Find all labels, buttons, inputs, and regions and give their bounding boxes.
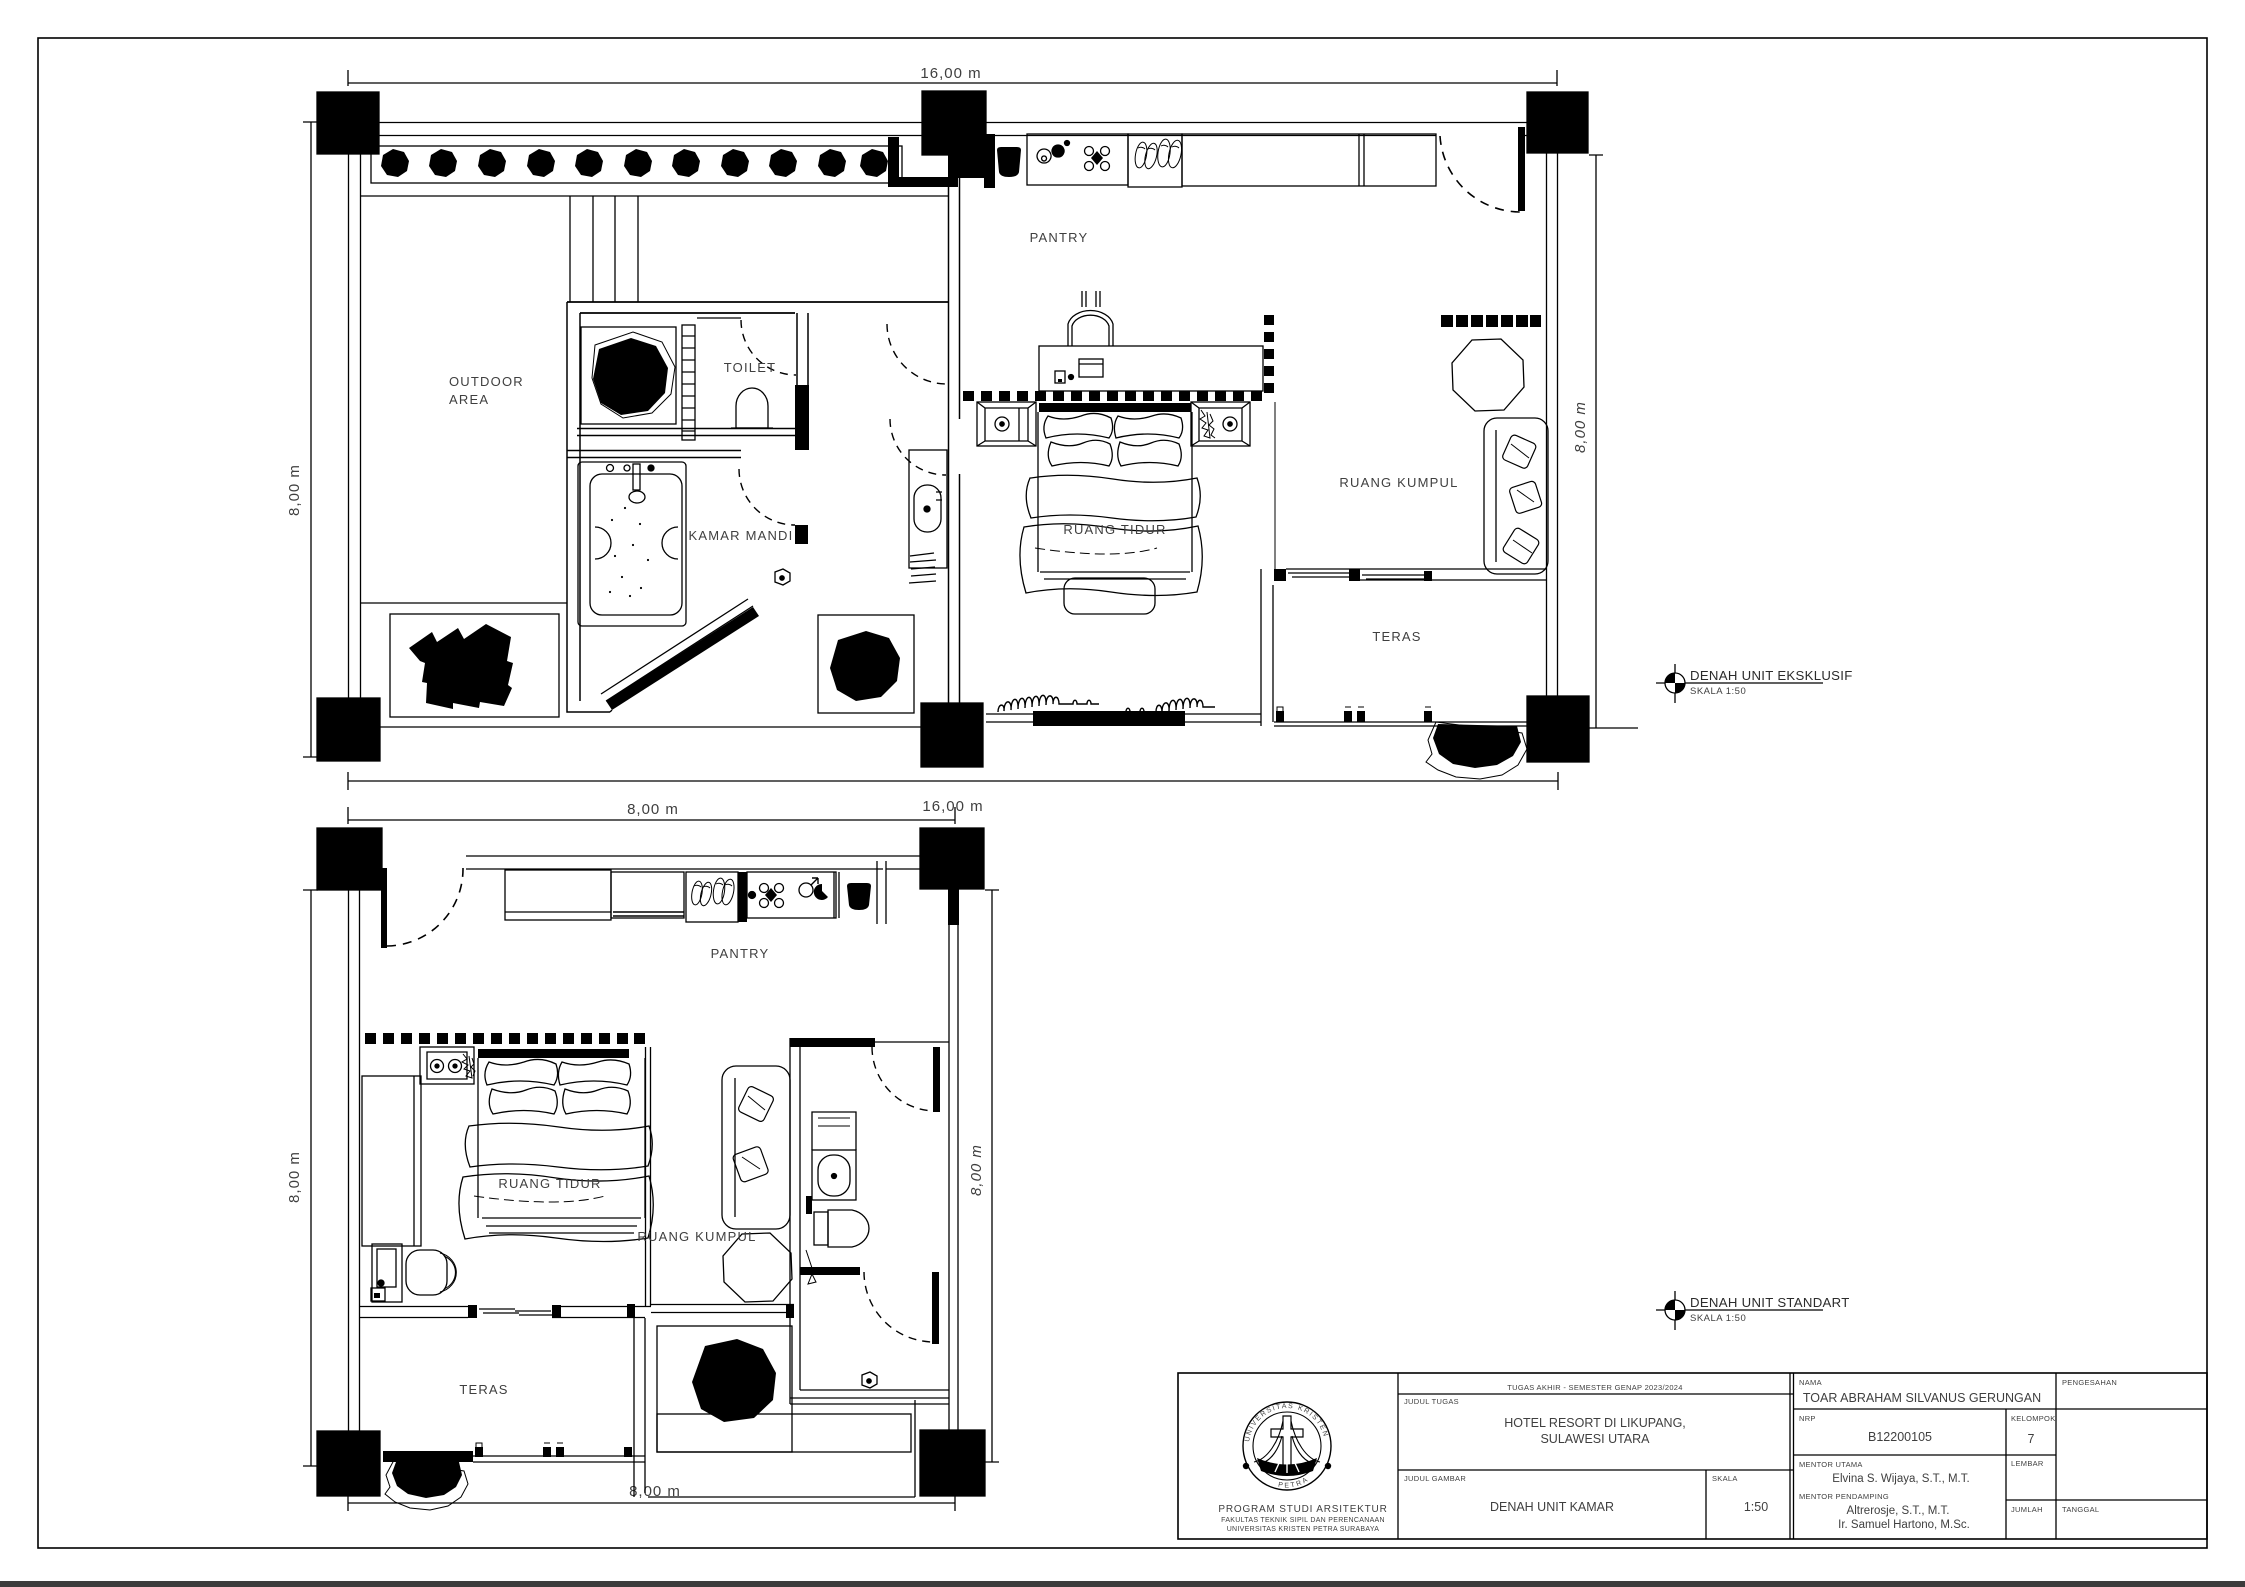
svg-text:SKALA 1:50: SKALA 1:50 bbox=[1690, 686, 1746, 697]
svg-text:JUMLAH: JUMLAH bbox=[2011, 1505, 2043, 1514]
svg-text:PANTRY: PANTRY bbox=[1030, 230, 1089, 245]
svg-text:TERAS: TERAS bbox=[459, 1382, 508, 1397]
svg-text:DENAH UNIT EKSKLUSIF: DENAH UNIT EKSKLUSIF bbox=[1690, 668, 1853, 683]
svg-text:MENTOR UTAMA: MENTOR UTAMA bbox=[1799, 1460, 1863, 1469]
svg-text:16,00 m: 16,00 m bbox=[922, 798, 983, 815]
svg-text:1:50: 1:50 bbox=[1744, 1500, 1768, 1514]
svg-text:MENTOR PENDAMPING: MENTOR PENDAMPING bbox=[1799, 1492, 1889, 1501]
svg-text:OUTDOOR: OUTDOOR bbox=[449, 374, 524, 389]
svg-text:7: 7 bbox=[2028, 1432, 2035, 1446]
svg-text:PANTRY: PANTRY bbox=[711, 946, 770, 961]
svg-text:8,00 m: 8,00 m bbox=[286, 1151, 303, 1203]
svg-text:DENAH UNIT STANDART: DENAH UNIT STANDART bbox=[1690, 1295, 1850, 1310]
svg-text:SULAWESI UTARA: SULAWESI UTARA bbox=[1540, 1432, 1650, 1446]
svg-text:KELOMPOK: KELOMPOK bbox=[2011, 1414, 2056, 1423]
svg-text:Ir. Samuel Hartono, M.Sc.: Ir. Samuel Hartono, M.Sc. bbox=[1838, 1519, 1970, 1531]
svg-text:DENAH UNIT KAMAR: DENAH UNIT KAMAR bbox=[1490, 1500, 1614, 1514]
svg-text:8,00 m: 8,00 m bbox=[627, 801, 679, 818]
svg-text:RUANG KUMPUL: RUANG KUMPUL bbox=[637, 1229, 756, 1244]
svg-text:Elvina S. Wijaya, S.T., M.T.: Elvina S. Wijaya, S.T., M.T. bbox=[1832, 1473, 1969, 1485]
svg-text:8,00 m: 8,00 m bbox=[968, 1144, 985, 1196]
svg-text:B12200105: B12200105 bbox=[1868, 1430, 1932, 1444]
svg-text:AREA: AREA bbox=[449, 392, 489, 407]
svg-text:KAMAR MANDI: KAMAR MANDI bbox=[689, 528, 794, 543]
svg-text:TUGAS AKHIR - SEMESTER GENAP 2: TUGAS AKHIR - SEMESTER GENAP 2023/2024 bbox=[1507, 1383, 1683, 1392]
svg-text:PENGESAHAN: PENGESAHAN bbox=[2062, 1378, 2117, 1387]
svg-text:NRP: NRP bbox=[1799, 1414, 1816, 1423]
svg-text:JUDUL GAMBAR: JUDUL GAMBAR bbox=[1404, 1474, 1466, 1483]
svg-text:SKALA: SKALA bbox=[1712, 1474, 1738, 1483]
svg-text:16,00 m: 16,00 m bbox=[920, 65, 981, 82]
svg-text:RUANG TIDUR: RUANG TIDUR bbox=[1063, 522, 1166, 537]
svg-text:Altrerosje, S.T., M.T.: Altrerosje, S.T., M.T. bbox=[1847, 1505, 1950, 1517]
svg-text:TOAR ABRAHAM SILVANUS GERUNGAN: TOAR ABRAHAM SILVANUS GERUNGAN bbox=[1803, 1391, 2041, 1405]
svg-text:TANGGAL: TANGGAL bbox=[2062, 1505, 2099, 1514]
svg-text:NAMA: NAMA bbox=[1799, 1378, 1822, 1387]
svg-text:RUANG KUMPUL: RUANG KUMPUL bbox=[1339, 475, 1458, 490]
svg-text:RUANG TIDUR: RUANG TIDUR bbox=[498, 1176, 601, 1191]
svg-text:LEMBAR: LEMBAR bbox=[2011, 1459, 2044, 1468]
svg-text:JUDUL TUGAS: JUDUL TUGAS bbox=[1404, 1397, 1459, 1406]
svg-text:TERAS: TERAS bbox=[1372, 629, 1421, 644]
svg-text:SKALA 1:50: SKALA 1:50 bbox=[1690, 1313, 1746, 1324]
svg-text:PROGRAM STUDI ARSITEKTUR: PROGRAM STUDI ARSITEKTUR bbox=[1218, 1504, 1387, 1515]
svg-text:8,00 m: 8,00 m bbox=[286, 464, 303, 516]
svg-text:HOTEL RESORT DI LIKUPANG,: HOTEL RESORT DI LIKUPANG, bbox=[1504, 1416, 1686, 1430]
svg-text:UNIVERSITAS KRISTEN PETRA SURA: UNIVERSITAS KRISTEN PETRA SURABAYA bbox=[1227, 1526, 1380, 1533]
svg-text:TOILET: TOILET bbox=[724, 360, 776, 375]
svg-text:FAKULTAS TEKNIK SIPIL DAN PERE: FAKULTAS TEKNIK SIPIL DAN PERENCANAAN bbox=[1221, 1517, 1385, 1524]
svg-text:8,00 m: 8,00 m bbox=[1572, 401, 1589, 453]
